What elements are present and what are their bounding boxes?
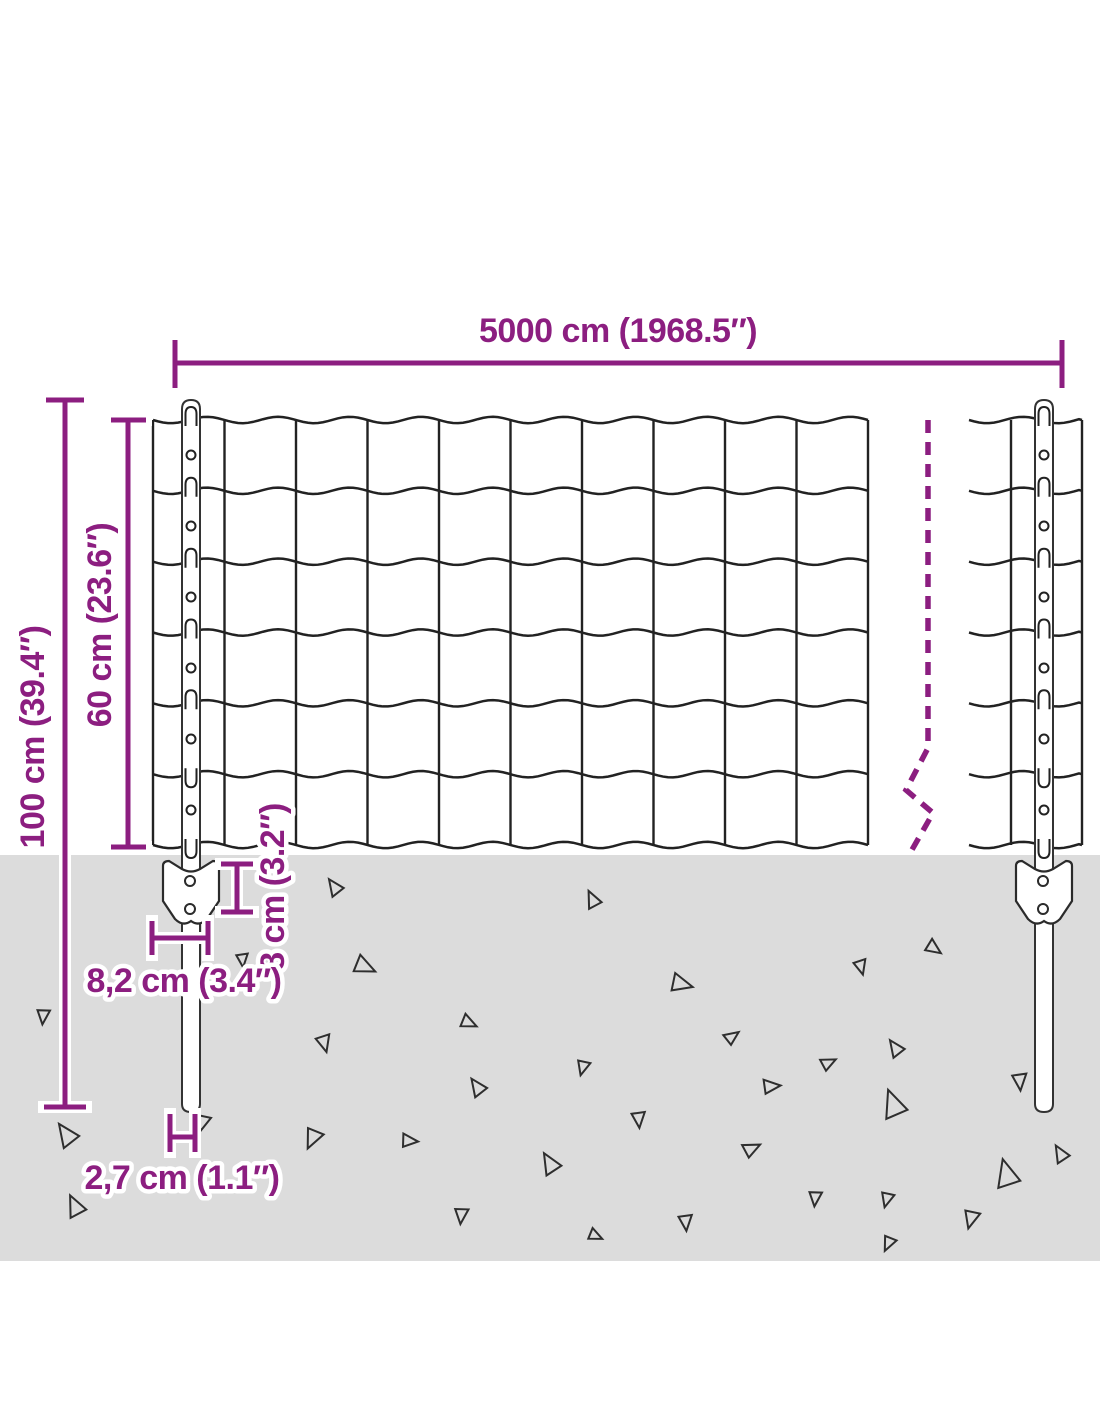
wire-clip (1039, 839, 1050, 858)
anchor-plate-hole (185, 904, 195, 914)
wire-clip (1039, 620, 1050, 639)
label-total-width: 5000 cm (1968.5″) (479, 312, 757, 350)
anchor-plate-hole (1038, 904, 1048, 914)
anchor-plate-hole (185, 876, 195, 886)
break-dashed-line (906, 420, 933, 855)
post-hole (1040, 735, 1049, 744)
mesh-wire-horizontal (969, 488, 1082, 494)
wire-clip (1039, 549, 1050, 568)
wire-clip (1039, 690, 1050, 709)
ground-soil-band (0, 855, 1100, 1261)
post-hole (187, 806, 196, 815)
mesh-wire-horizontal (969, 417, 1082, 423)
label-anchor-width: 8,2 cm (3.4″) (87, 962, 282, 1000)
wire-clip (186, 768, 197, 787)
post-hole (1040, 806, 1049, 815)
mesh-wire-horizontal (969, 842, 1082, 848)
mesh-wire-horizontal (969, 771, 1082, 777)
label-post-diameter: 2,7 cm (1.1″) (85, 1159, 280, 1197)
wire-clip (186, 549, 197, 568)
wire-clip (1039, 407, 1050, 426)
mesh-wire-horizontal (969, 700, 1082, 706)
mesh-wire-horizontal (969, 629, 1082, 635)
post-hole (1040, 522, 1049, 531)
fence-post (182, 400, 200, 1112)
label-fence-height: 60 cm (23.6″) (81, 523, 119, 727)
post-hole (1040, 664, 1049, 673)
post-hole (187, 593, 196, 602)
post-hole (1040, 451, 1049, 460)
wire-clip (186, 690, 197, 709)
post-hole (187, 735, 196, 744)
diagram-canvas: 5000 cm (1968.5″) 100 cm (39.4″) 60 cm (… (0, 0, 1100, 1422)
wire-clip (1039, 478, 1050, 497)
wire-clip (1039, 768, 1050, 787)
wire-clip (186, 620, 197, 639)
label-total-height: 100 cm (39.4″) (14, 626, 52, 849)
fence-post (1035, 400, 1053, 1112)
mesh-wire-horizontal (969, 559, 1082, 565)
fence-dimension-diagram: 5000 cm (1968.5″) 100 cm (39.4″) 60 cm (… (0, 0, 1100, 1422)
post-hole (1040, 593, 1049, 602)
wire-mesh-group (153, 417, 1082, 848)
post-hole (187, 522, 196, 531)
label-anchor-height: 8 cm (3.2″) (254, 803, 292, 971)
wire-clip (186, 407, 197, 426)
post-hole (187, 451, 196, 460)
anchor-plate-hole (1038, 876, 1048, 886)
wire-clip (186, 839, 197, 858)
post-hole (187, 664, 196, 673)
wire-clip (186, 478, 197, 497)
